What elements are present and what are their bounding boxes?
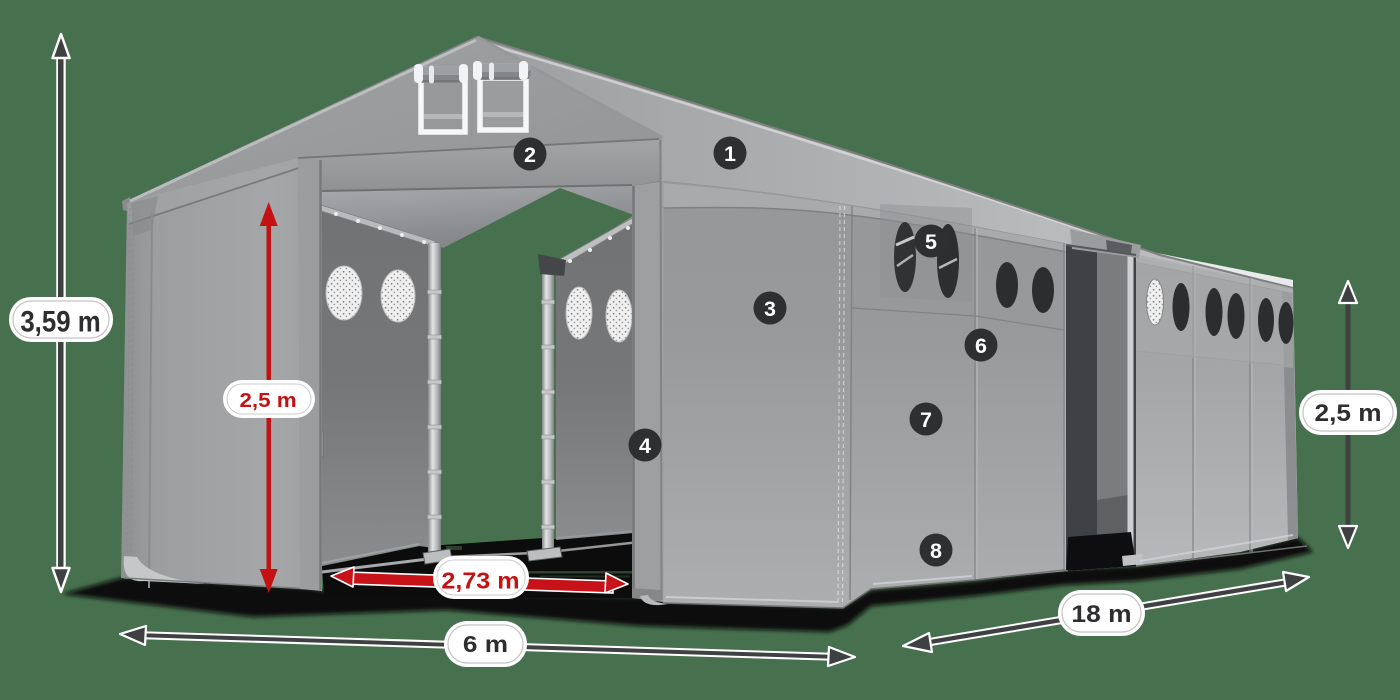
svg-text:8: 8: [930, 539, 942, 563]
svg-text:1: 1: [724, 142, 736, 166]
svg-text:3,59 m: 3,59 m: [20, 305, 100, 338]
svg-text:5: 5: [925, 230, 937, 254]
svg-text:2: 2: [524, 143, 536, 167]
svg-text:4: 4: [639, 434, 651, 458]
svg-text:2,5 m: 2,5 m: [1314, 400, 1381, 427]
svg-text:7: 7: [920, 408, 932, 432]
svg-text:18 m: 18 m: [1071, 601, 1131, 628]
svg-text:2,73 m: 2,73 m: [441, 568, 519, 594]
svg-text:6 m: 6 m: [463, 632, 508, 657]
svg-text:2,5 m: 2,5 m: [239, 389, 296, 412]
svg-text:6: 6: [975, 334, 987, 358]
svg-text:3: 3: [764, 297, 776, 321]
